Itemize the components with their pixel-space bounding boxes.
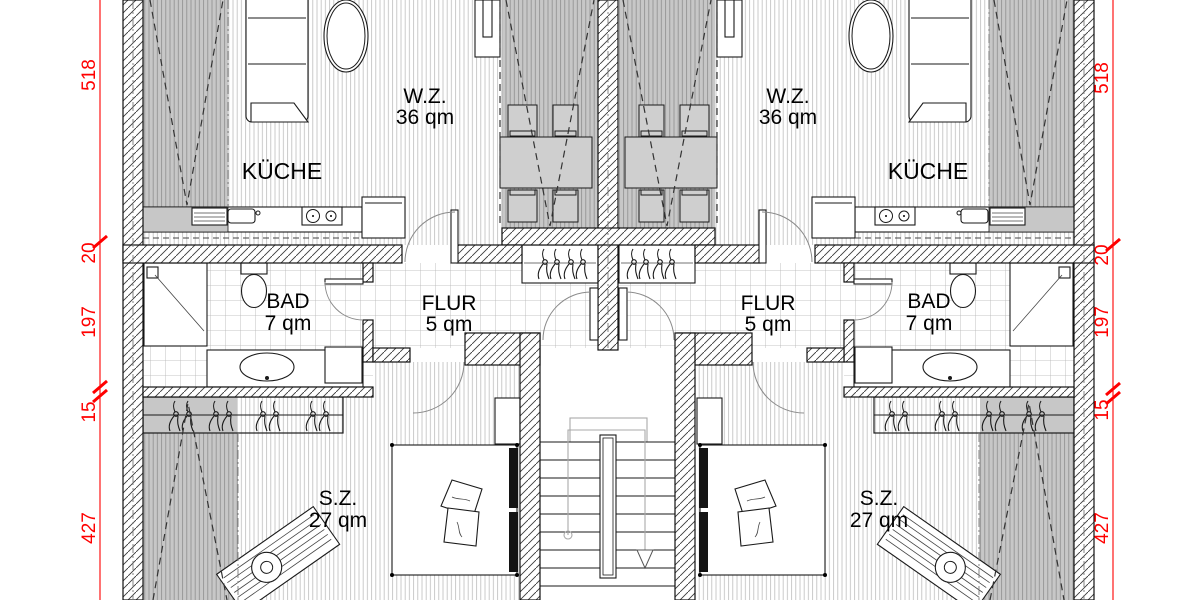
kitchen-sink-icon <box>961 209 988 223</box>
bath-cabinet <box>325 347 362 383</box>
dishwasher-icon <box>192 208 227 225</box>
loggia-door-left <box>475 0 500 57</box>
floor-bedroom-right-upper <box>697 362 844 397</box>
room-area-wz-left: 36 qm <box>396 106 454 129</box>
dim-label-197-right: 197 <box>1092 306 1113 338</box>
room-area-bad-left: 7 qm <box>265 312 312 335</box>
room-label-sz-left: S.Z. <box>319 487 358 510</box>
kitchen-sink-icon <box>228 209 255 223</box>
door-leaf-entry-left <box>590 288 598 340</box>
room-area-wz-right: 36 qm <box>759 106 817 129</box>
coat-rack-left <box>522 245 598 283</box>
door-leaf-entry-right <box>619 288 627 340</box>
nightstand-right <box>697 398 722 444</box>
roof-slope-closet-left <box>143 0 228 207</box>
dim-label-518-left: 518 <box>79 59 100 91</box>
pillow <box>444 508 479 546</box>
dining-table <box>625 137 717 188</box>
room-area-flur-left: 5 qm <box>426 313 473 336</box>
floor-bedroom-left-upper <box>373 362 520 397</box>
room-label-bad-left: BAD <box>266 290 309 313</box>
pillow <box>738 508 773 546</box>
headboard <box>509 512 518 572</box>
stairwell-wall-right <box>675 333 695 600</box>
room-label-kueche-left: KÜCHE <box>242 158 323 184</box>
bed-left <box>390 443 519 577</box>
toilet-icon <box>950 263 976 274</box>
floor-plan-drawing: W.Z. 36 qm W.Z. 36 qm KÜCHE KÜCHE BAD 7 … <box>0 0 1200 600</box>
room-label-bad-right: BAD <box>907 290 950 313</box>
dim-label-427-left: 427 <box>79 512 100 544</box>
door-leaf-bath-left <box>325 279 363 284</box>
room-label-flur-right: FLUR <box>741 292 796 315</box>
bed-right <box>698 443 827 577</box>
room-area-sz-left: 27 qm <box>309 509 367 532</box>
dining-table <box>500 137 592 188</box>
headboard <box>509 448 518 508</box>
room-label-flur-left: FLUR <box>422 292 477 315</box>
room-label-kueche-right: KÜCHE <box>888 158 969 184</box>
dim-label-20-right: 20 <box>1092 244 1113 265</box>
dim-label-15-right: 15 <box>1092 399 1113 420</box>
door-leaf-kitchen-left <box>451 210 458 263</box>
dim-label-15-left: 15 <box>79 401 100 422</box>
sofa-right <box>909 0 971 122</box>
room-label-wz-right: W.Z. <box>766 85 809 108</box>
headboard <box>699 448 708 508</box>
coffee-table-right <box>849 0 893 72</box>
dishwasher-icon <box>990 208 1025 225</box>
dim-label-197-left: 197 <box>79 306 100 338</box>
coat-rack-right <box>619 245 695 283</box>
floor-plan-canvas: W.Z. 36 qm W.Z. 36 qm KÜCHE KÜCHE BAD 7 … <box>0 0 1200 600</box>
room-area-flur-right: 5 qm <box>745 313 792 336</box>
toilet-icon <box>241 263 267 274</box>
loggia-door-right <box>717 0 742 57</box>
stair-handrail <box>600 435 616 578</box>
room-label-sz-right: S.Z. <box>860 487 899 510</box>
nightstand-left <box>495 398 520 444</box>
bath-cabinet <box>855 347 892 383</box>
room-area-bad-right: 7 qm <box>906 312 953 335</box>
dimension-chain-right: 518 20 197 15 427 <box>1092 0 1120 600</box>
room-label-wz-left: W.Z. <box>403 85 446 108</box>
stairwell-wall-left <box>520 333 540 600</box>
coffee-table-left <box>324 0 368 72</box>
room-area-sz-right: 27 qm <box>850 509 908 532</box>
dimension-chain-left: 518 20 197 15 427 <box>79 0 107 600</box>
door-leaf-kitchen-right <box>759 210 766 263</box>
headboard <box>699 512 708 572</box>
dim-label-427-right: 427 <box>1092 512 1113 544</box>
dim-label-20-left: 20 <box>79 242 100 263</box>
door-leaf-bath-right <box>854 279 892 284</box>
sofa-left <box>246 0 308 122</box>
dim-label-518-right: 518 <box>1092 62 1113 94</box>
